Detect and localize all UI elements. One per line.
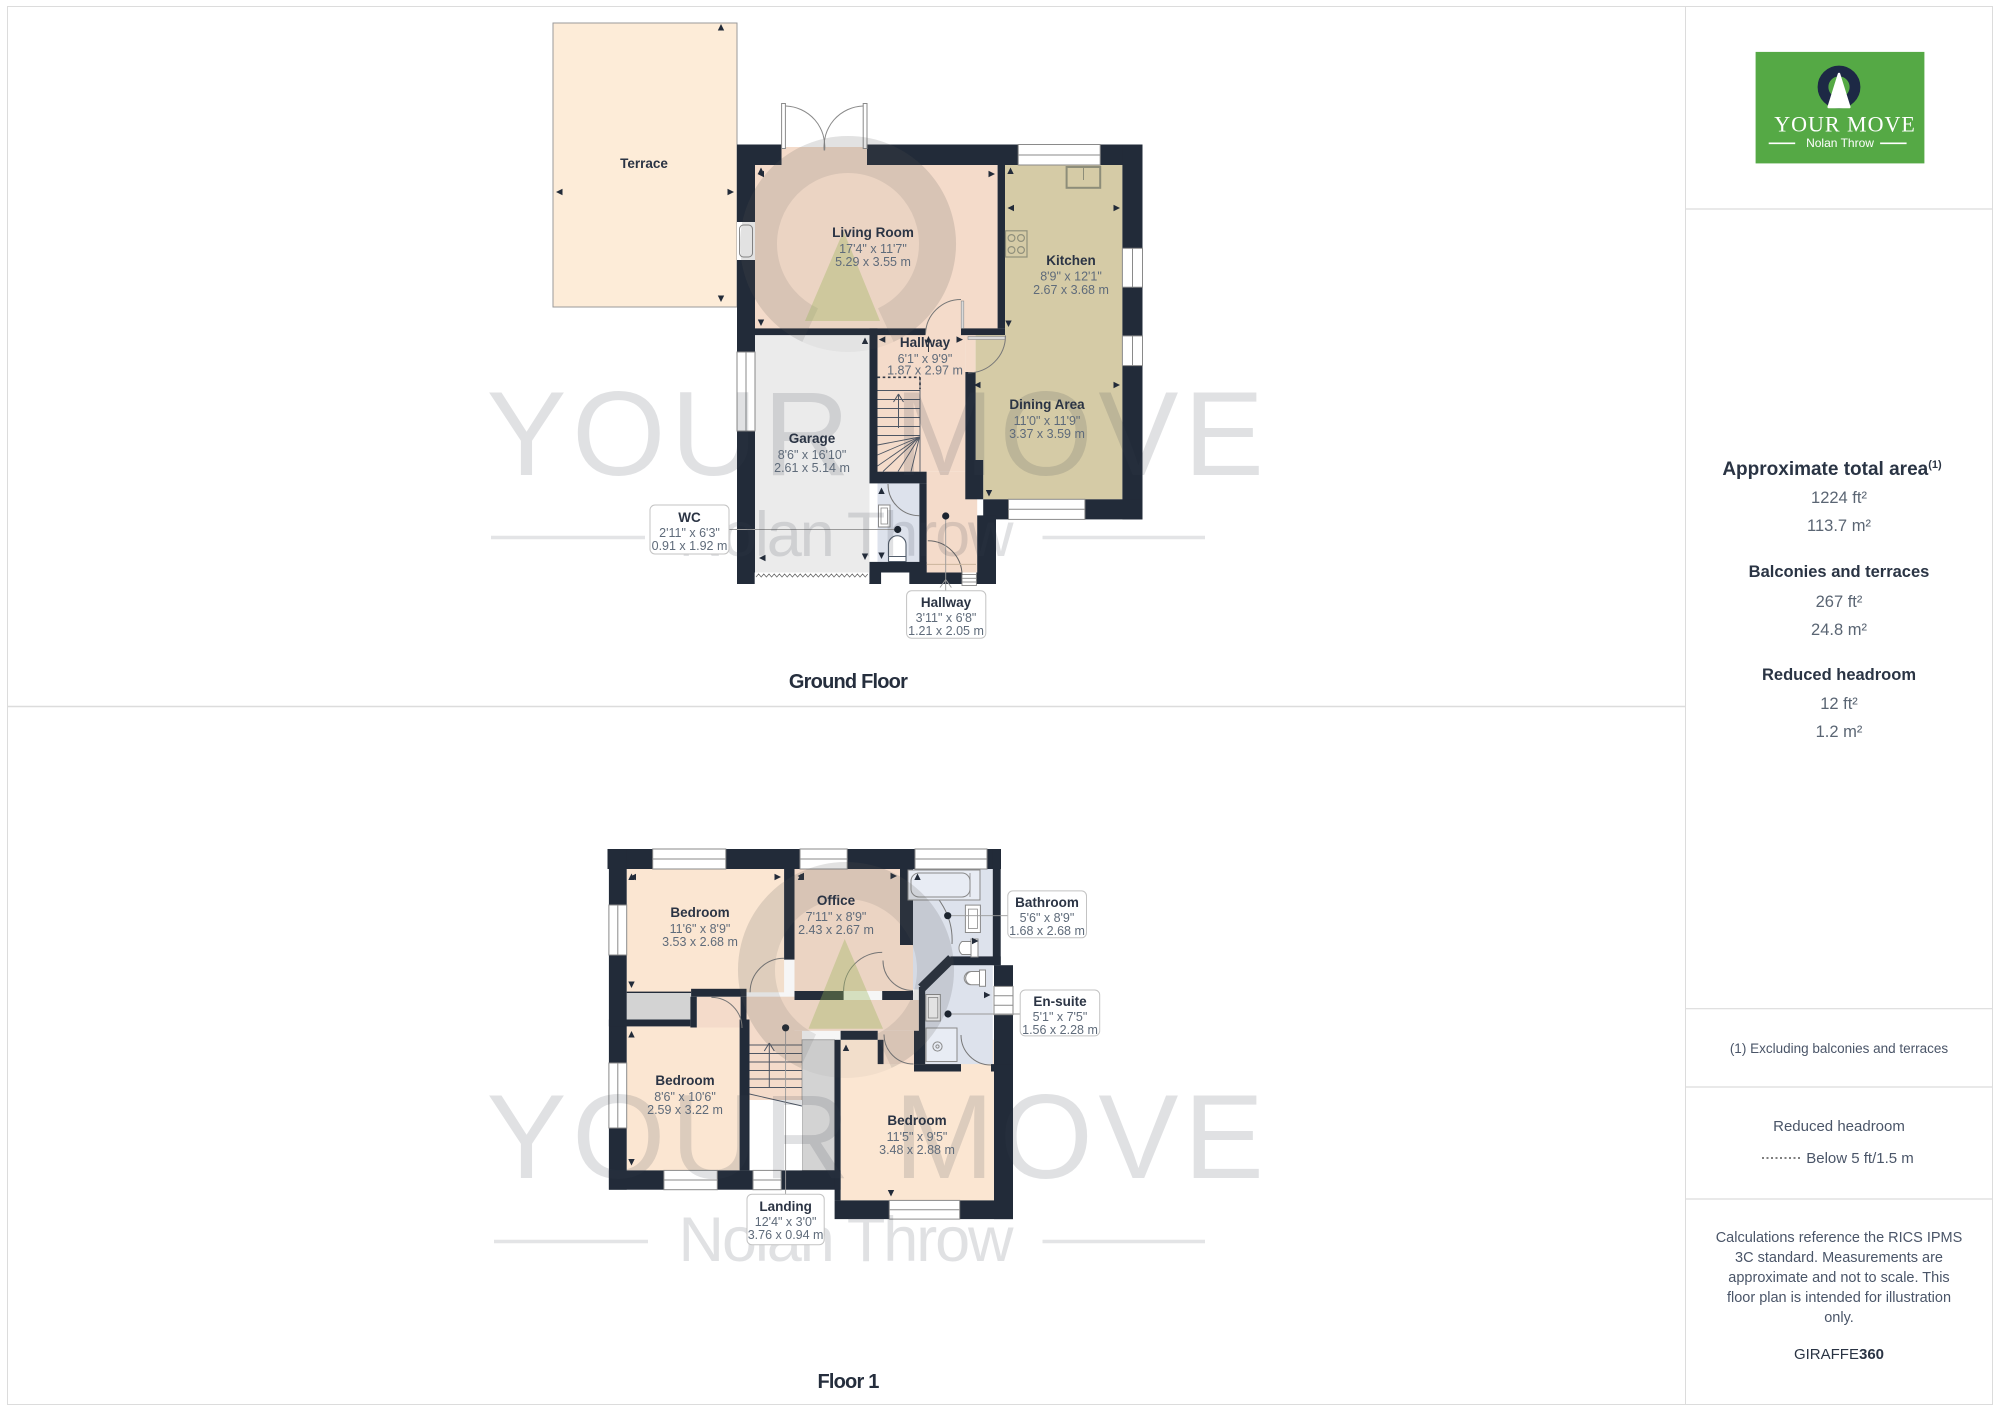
svg-text:YOUR MOVE: YOUR MOVE	[487, 367, 1270, 501]
svg-text:(1) Excluding balconies and te: (1) Excluding balconies and terraces	[1730, 1041, 1949, 1056]
svg-text:2.61 x 5.14 m: 2.61 x 5.14 m	[774, 461, 850, 475]
svg-text:2'11" x 6'3": 2'11" x 6'3"	[659, 526, 720, 540]
svg-text:Garage: Garage	[789, 431, 836, 446]
svg-text:WC: WC	[678, 510, 701, 525]
svg-text:11'5" x 9'5": 11'5" x 9'5"	[887, 1130, 948, 1144]
svg-text:1.2 m²: 1.2 m²	[1816, 723, 1863, 741]
svg-text:11'6" x 8'9": 11'6" x 8'9"	[670, 922, 731, 936]
svg-text:267 ft²: 267 ft²	[1816, 593, 1863, 611]
svg-text:Floor 1: Floor 1	[817, 1371, 879, 1393]
svg-text:8'6" x 10'6": 8'6" x 10'6"	[654, 1090, 716, 1104]
svg-text:Kitchen: Kitchen	[1046, 253, 1096, 268]
svg-text:5'6" x 8'9": 5'6" x 8'9"	[1020, 911, 1075, 925]
svg-text:Living Room: Living Room	[832, 225, 914, 240]
svg-text:12 ft²: 12 ft²	[1820, 695, 1858, 713]
svg-text:3.53 x 2.68 m: 3.53 x 2.68 m	[662, 935, 738, 949]
svg-text:1.87 x 2.97 m: 1.87 x 2.97 m	[887, 364, 963, 378]
svg-text:Nolan Throw: Nolan Throw	[679, 1205, 1015, 1275]
svg-text:YOUR MOVE: YOUR MOVE	[487, 1070, 1270, 1204]
svg-text:only.: only.	[1824, 1310, 1854, 1326]
svg-text:2.59 x 3.22 m: 2.59 x 3.22 m	[647, 1103, 723, 1117]
svg-text:1.56 x 2.28 m: 1.56 x 2.28 m	[1022, 1023, 1098, 1037]
svg-text:Bedroom: Bedroom	[887, 1113, 946, 1128]
svg-text:11'0" x 11'9": 11'0" x 11'9"	[1014, 414, 1081, 428]
svg-text:3.48 x 2.88 m: 3.48 x 2.88 m	[879, 1143, 955, 1157]
svg-text:Nolan Throw: Nolan Throw	[1806, 136, 1874, 150]
svg-text:approximate and not to scale.: approximate and not to scale. This	[1728, 1270, 1949, 1286]
svg-text:3.76 x 0.94 m: 3.76 x 0.94 m	[748, 1228, 824, 1242]
svg-text:Balconies and terraces: Balconies and terraces	[1749, 563, 1930, 581]
svg-text:7'11" x 8'9": 7'11" x 8'9"	[806, 910, 867, 924]
svg-text:8'6" x 16'10": 8'6" x 16'10"	[778, 448, 847, 462]
svg-text:Approximate total area(1): Approximate total area(1)	[1722, 459, 1942, 480]
svg-text:5'1" x 7'5": 5'1" x 7'5"	[1033, 1010, 1088, 1024]
svg-text:Bedroom: Bedroom	[655, 1073, 714, 1088]
svg-text:Reduced headroom: Reduced headroom	[1773, 1118, 1905, 1135]
svg-text:Reduced headroom: Reduced headroom	[1762, 666, 1916, 684]
svg-text:3.37 x 3.59 m: 3.37 x 3.59 m	[1009, 427, 1085, 441]
svg-text:Hallway: Hallway	[921, 595, 972, 610]
svg-text:1.68 x 2.68 m: 1.68 x 2.68 m	[1009, 924, 1085, 938]
svg-text:Bedroom: Bedroom	[670, 905, 729, 920]
svg-text:12'4" x 3'0": 12'4" x 3'0"	[755, 1215, 817, 1229]
svg-text:Landing: Landing	[759, 1199, 812, 1214]
svg-text:3'11" x 6'8": 3'11" x 6'8"	[916, 611, 977, 625]
svg-text:Bathroom: Bathroom	[1015, 895, 1079, 910]
svg-text:5.29 x 3.55 m: 5.29 x 3.55 m	[835, 255, 911, 269]
svg-text:Office: Office	[817, 893, 856, 908]
svg-text:Terrace: Terrace	[620, 156, 668, 171]
svg-text:0.91 x 1.92 m: 0.91 x 1.92 m	[652, 539, 728, 553]
svg-text:Dining Area: Dining Area	[1009, 397, 1085, 412]
svg-text:Calculations reference the RIC: Calculations reference the RICS IPMS	[1716, 1230, 1963, 1246]
svg-text:1224 ft²: 1224 ft²	[1811, 489, 1867, 507]
svg-text:GIRAFFE360: GIRAFFE360	[1794, 1346, 1884, 1363]
svg-text:Ground Floor: Ground Floor	[789, 671, 908, 693]
svg-text:2.43 x 2.67 m: 2.43 x 2.67 m	[798, 923, 874, 937]
svg-text:floor plan is intended for ill: floor plan is intended for illustration	[1727, 1290, 1951, 1306]
svg-text:Below 5 ft/1.5 m: Below 5 ft/1.5 m	[1806, 1150, 1914, 1167]
svg-text:Hallway: Hallway	[900, 335, 951, 350]
svg-text:YOUR MOVE: YOUR MOVE	[1774, 112, 1916, 137]
svg-text:24.8 m²: 24.8 m²	[1811, 621, 1867, 639]
svg-text:1.21 x 2.05 m: 1.21 x 2.05 m	[908, 624, 984, 638]
svg-text:3C standard. Measurements are: 3C standard. Measurements are	[1735, 1250, 1943, 1266]
svg-text:113.7 m²: 113.7 m²	[1807, 517, 1871, 535]
svg-text:2.67 x 3.68 m: 2.67 x 3.68 m	[1033, 283, 1109, 297]
svg-text:17'4" x 11'7": 17'4" x 11'7"	[839, 242, 907, 256]
svg-text:En-suite: En-suite	[1033, 994, 1087, 1009]
svg-text:8'9" x 12'1": 8'9" x 12'1"	[1040, 270, 1102, 284]
